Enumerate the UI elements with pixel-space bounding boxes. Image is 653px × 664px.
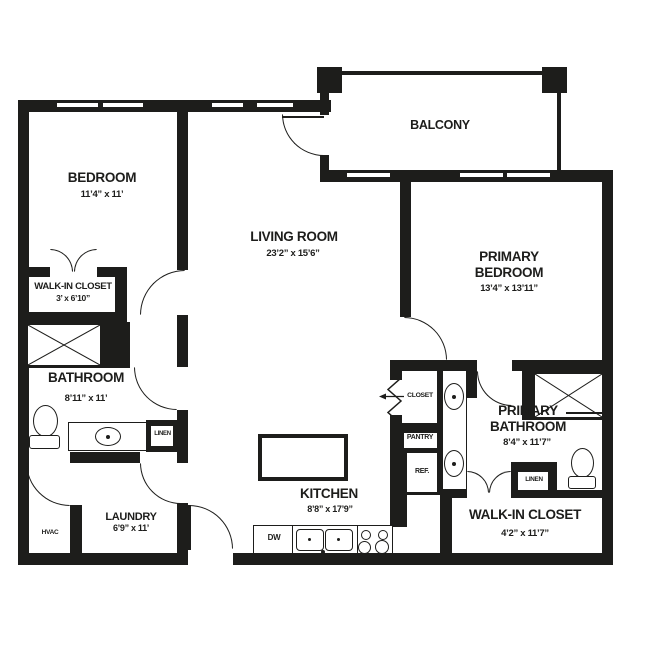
balcony-wall-stub-lower xyxy=(320,155,329,170)
room-label-balcony: BALCONY xyxy=(410,119,470,133)
room-label-primary-closet: WALK-IN CLOSET xyxy=(469,508,581,523)
wall-wic-left xyxy=(440,490,452,565)
wic-door-arc-left xyxy=(467,471,489,493)
wall-wic-top-right xyxy=(557,490,602,498)
stove-burner xyxy=(378,530,388,540)
room-label-kitchen: KITCHEN xyxy=(300,487,358,502)
room-label-bathroom: BATHROOM xyxy=(48,371,124,386)
window xyxy=(257,103,293,107)
entry-door-arc xyxy=(189,505,233,549)
window xyxy=(212,103,243,107)
balcony-post-right xyxy=(542,67,567,93)
room-dims-laundry: 6’9” x 11’ xyxy=(113,524,149,534)
window xyxy=(57,103,98,107)
closet-arrow-icon xyxy=(379,392,405,401)
room-label-living-room: LIVING ROOM xyxy=(250,230,337,245)
wall-entry-stub xyxy=(177,503,188,553)
drain-dot xyxy=(308,538,311,541)
wic-door-arc-right xyxy=(489,471,511,493)
wall-wic-top-left xyxy=(452,490,467,498)
primary-toilet-bowl xyxy=(571,448,594,478)
stove-burner xyxy=(361,530,371,540)
closet-wall-top-left xyxy=(18,267,50,277)
primary-bedroom-door-arc xyxy=(404,317,447,360)
room-label-primary-bathroom: PRIMARY BATHROOM xyxy=(474,403,582,435)
room-label-primary-bedroom: PRIMARY BEDROOM xyxy=(458,249,560,280)
balcony-rail-top xyxy=(342,71,542,75)
fixture-label-dishwasher: DW xyxy=(268,534,281,543)
room-label-bedroom: BEDROOM xyxy=(68,171,136,186)
floor-plan: BEDROOM 11’4” x 11’ WALK-IN CLOSET 3’ x … xyxy=(0,0,653,664)
drain-dot xyxy=(337,538,340,541)
wall-hall-lower xyxy=(177,410,188,463)
closet-door-arc-right xyxy=(74,249,97,272)
fixture-label-linen-bath: LINEN xyxy=(154,431,171,438)
fixture-label-linen-primary: LINEN xyxy=(525,477,542,484)
balcony-wall-stub-upper xyxy=(320,93,329,115)
room-dims-bathroom: 8’11” x 11’ xyxy=(65,394,108,404)
faucet-dot xyxy=(452,395,456,399)
room-label-laundry: LAUNDRY xyxy=(105,511,156,523)
stove-burner xyxy=(358,541,371,554)
laundry-door-arc xyxy=(140,463,181,504)
kitchen-island xyxy=(258,434,348,481)
wall-hall-mid xyxy=(177,315,188,367)
window xyxy=(103,103,143,107)
balcony-door-arc xyxy=(282,114,324,156)
primary-toilet-tank xyxy=(568,476,596,489)
bifold-door xyxy=(384,376,404,426)
closet-wall-bottom xyxy=(18,312,127,322)
balcony-rail-right xyxy=(557,93,561,172)
fixture-label-closet: CLOSET xyxy=(407,392,433,399)
shower xyxy=(25,322,103,368)
faucet-dot xyxy=(321,550,325,554)
wall-living-primary xyxy=(400,173,411,317)
wall-vanity-stub xyxy=(467,371,477,398)
room-dims-kitchen: 8’8” x 17’9” xyxy=(307,505,352,515)
room-dims-living-room: 23’2” x 15’6” xyxy=(266,249,319,259)
wall-bottom-right xyxy=(233,553,613,565)
fixture-label-refrigerator: REF. xyxy=(415,468,429,476)
room-dims-bedroom-closet: 3’ x 6’10” xyxy=(56,294,90,303)
primary-bathroom-door-arc xyxy=(477,371,512,406)
room-dims-primary-closet: 4’2” x 11’7” xyxy=(501,529,549,539)
faucet-dot xyxy=(452,462,456,466)
fixture-label-pantry: PANTRY xyxy=(407,434,433,442)
closet-door-arc-left xyxy=(50,249,73,272)
fixture-label-hvac: HVAC xyxy=(42,529,59,536)
room-dims-bedroom: 11’4” x 11’ xyxy=(81,190,124,200)
bedroom-door-arc xyxy=(140,270,185,315)
bathroom-door-arc xyxy=(134,367,177,410)
wall-hvac-laundry xyxy=(70,505,82,553)
wall-chunk-shower xyxy=(100,322,130,368)
room-dims-primary-bedroom: 13’4” x 13’11” xyxy=(480,284,538,294)
toilet-tank xyxy=(29,435,60,449)
window xyxy=(460,173,503,177)
faucet-dot xyxy=(106,435,110,439)
wall-bedroom-living xyxy=(177,112,188,270)
wall-primary-bottom-right xyxy=(512,360,602,371)
kitchen-pass-open xyxy=(407,495,443,527)
wall-bottom-left xyxy=(18,553,188,565)
balcony-post-left xyxy=(317,67,342,93)
wall-bath-bottom-b xyxy=(70,452,140,463)
window xyxy=(507,173,550,177)
room-dims-primary-bathroom: 8’4” x 11’7” xyxy=(503,438,551,448)
wall-right xyxy=(602,170,613,565)
room-label-bedroom-closet: WALK-IN CLOSET xyxy=(34,282,112,292)
hvac-door-arc xyxy=(26,462,70,506)
toilet-bowl xyxy=(33,405,58,437)
window xyxy=(347,173,390,177)
counter-divider xyxy=(292,526,293,553)
stove-burner xyxy=(375,540,389,554)
